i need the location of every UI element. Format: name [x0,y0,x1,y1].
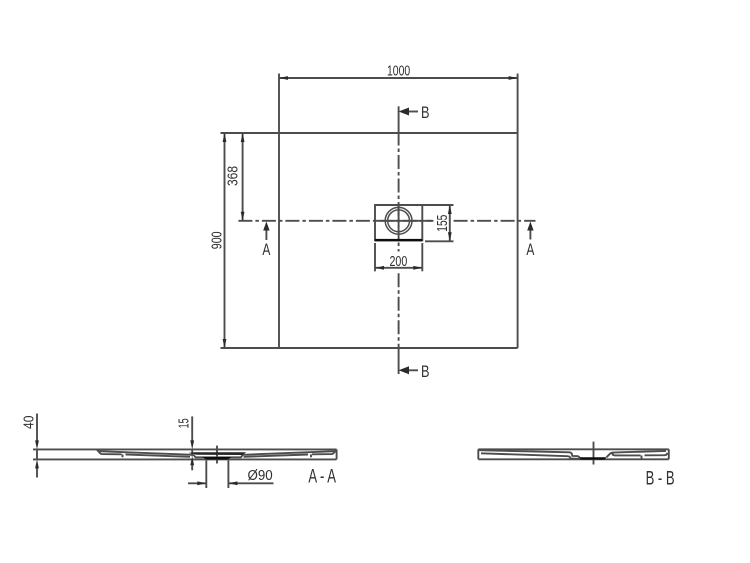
svg-text:200: 200 [390,254,408,270]
svg-text:40: 40 [22,416,38,429]
svg-text:A - A: A - A [308,466,336,487]
svg-text:368: 368 [226,166,242,186]
svg-text:1000: 1000 [387,64,410,80]
svg-text:A: A [262,240,270,259]
svg-text:B: B [421,362,430,381]
svg-text:15: 15 [176,418,192,428]
svg-text:Ø90: Ø90 [248,468,273,484]
svg-text:B: B [421,103,430,122]
svg-text:155: 155 [435,215,451,232]
svg-text:900: 900 [209,231,225,249]
svg-text:A: A [526,240,534,259]
svg-text:B - B: B - B [646,469,675,490]
